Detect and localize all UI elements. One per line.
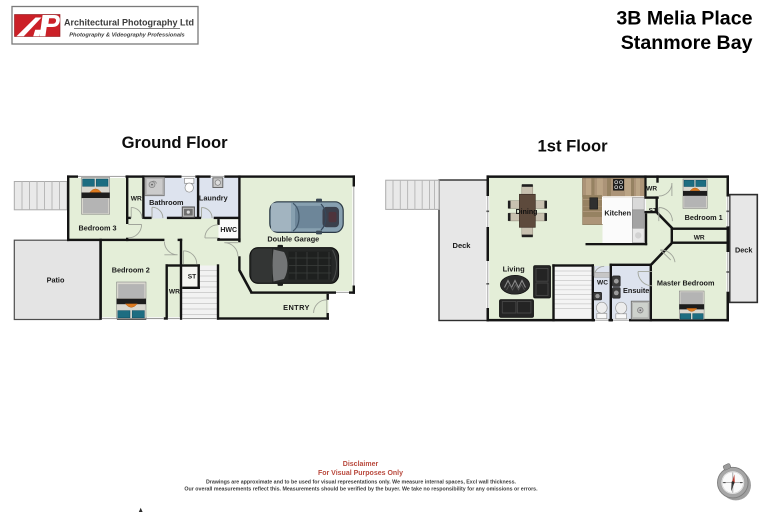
svg-text:Master Bedroom: Master Bedroom — [657, 279, 715, 288]
svg-text:WR: WR — [646, 185, 657, 192]
svg-text:Ensuite: Ensuite — [623, 286, 649, 295]
svg-text:ST: ST — [649, 208, 657, 215]
svg-text:Bathroom: Bathroom — [149, 198, 184, 207]
svg-text:Laundry: Laundry — [199, 194, 229, 203]
svg-text:HWC: HWC — [220, 227, 237, 234]
svg-text:Dining: Dining — [516, 209, 538, 216]
svg-text:3B Melia Place: 3B Melia Place — [616, 8, 752, 30]
svg-text:ENTRY: ENTRY — [283, 303, 310, 312]
svg-text:Deck: Deck — [453, 241, 472, 250]
svg-text:Disclaimer: Disclaimer — [343, 461, 379, 468]
svg-text:WR: WR — [694, 234, 705, 241]
svg-text:Stanmore Bay: Stanmore Bay — [621, 32, 753, 54]
svg-text:1st Floor: 1st Floor — [538, 136, 609, 155]
svg-text:Our overall measurements refle: Our overall measurements reflect this. M… — [184, 487, 538, 493]
svg-text:Bedroom 3: Bedroom 3 — [78, 224, 116, 233]
svg-text:Photography & Videography Prof: Photography & Videography Professionals — [69, 33, 184, 39]
svg-text:For Visual Purposes Only: For Visual Purposes Only — [318, 470, 403, 477]
svg-text:Kitchen: Kitchen — [604, 208, 631, 217]
svg-text:ST: ST — [188, 274, 196, 281]
svg-text:WR: WR — [131, 196, 142, 203]
svg-text:Drawings are approximate and t: Drawings are approximate and to be used … — [206, 480, 517, 486]
svg-text:Living: Living — [503, 265, 526, 274]
svg-text:Bedroom 2: Bedroom 2 — [112, 266, 150, 275]
svg-text:WR: WR — [169, 289, 180, 296]
svg-text:Bedroom 1: Bedroom 1 — [685, 213, 723, 222]
svg-text:Ground Floor: Ground Floor — [122, 133, 229, 152]
svg-text:Deck: Deck — [735, 246, 753, 255]
svg-text:WC: WC — [597, 280, 608, 287]
svg-text:Patio: Patio — [47, 276, 65, 285]
svg-text:Double Garage: Double Garage — [267, 235, 319, 244]
svg-text:Architectural Photography Ltd: Architectural Photography Ltd — [64, 18, 194, 28]
